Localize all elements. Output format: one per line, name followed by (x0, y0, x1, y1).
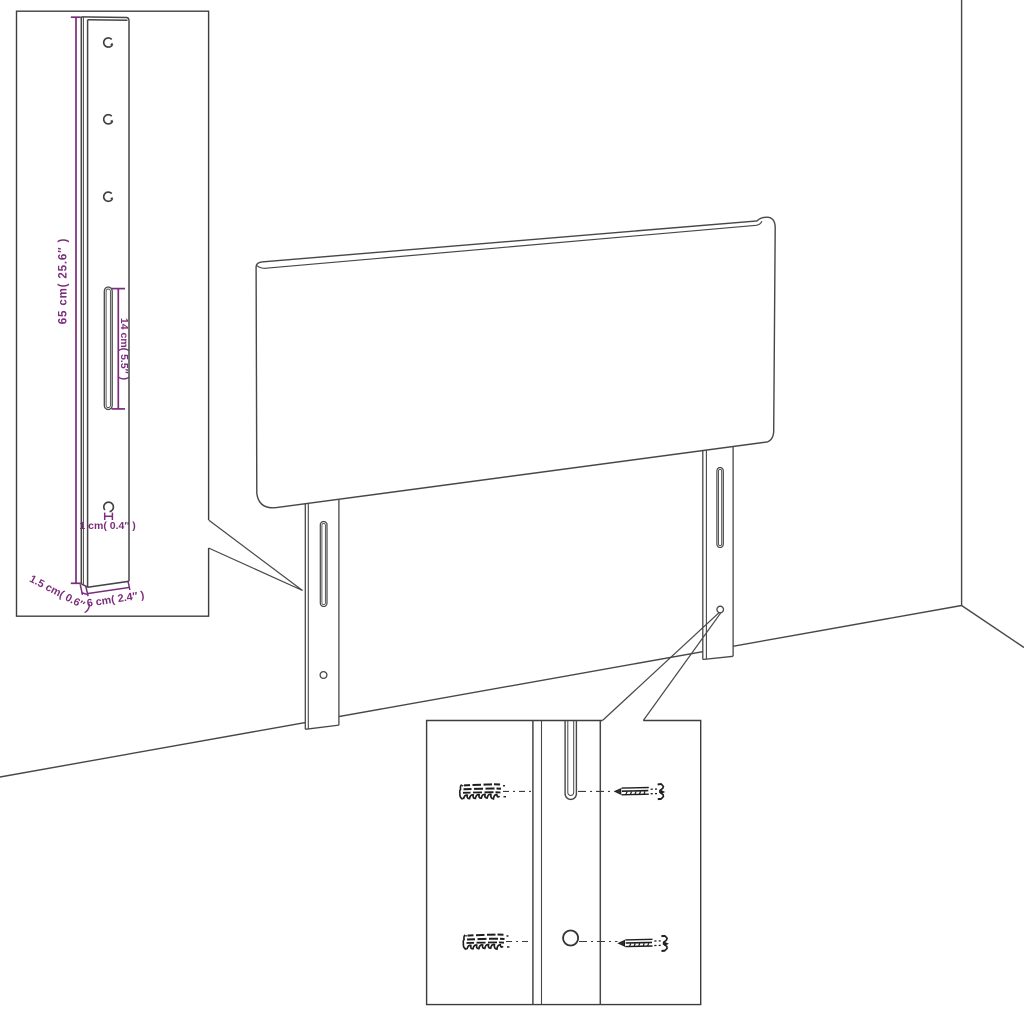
svg-text:1 cm( 0.4″ ): 1 cm( 0.4″ ) (79, 520, 135, 532)
svg-text:14 cm( 5.5″ ): 14 cm( 5.5″ ) (118, 318, 130, 380)
svg-text:65 cm( 25.6″ ): 65 cm( 25.6″ ) (58, 238, 70, 324)
